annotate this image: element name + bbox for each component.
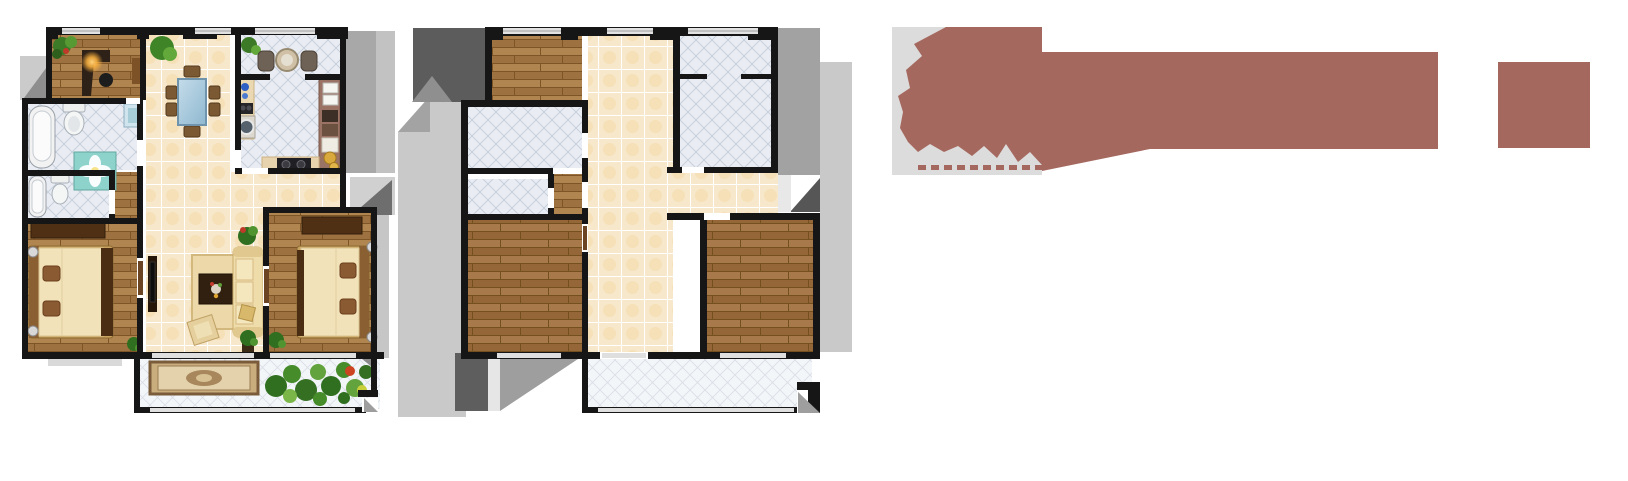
toilet-second xyxy=(51,175,69,204)
window-sill xyxy=(497,353,561,358)
nightstand-lamp xyxy=(28,326,38,336)
study-shelf xyxy=(132,58,140,84)
square-seal xyxy=(1498,62,1590,148)
window-sill xyxy=(270,353,356,358)
sofa xyxy=(233,247,263,337)
door-leaf xyxy=(138,261,143,295)
toilet-main xyxy=(63,103,85,135)
nook-chair-left xyxy=(258,51,274,71)
double-bed-right xyxy=(297,246,369,338)
floorplan-poster xyxy=(0,0,1628,481)
hall-floor-vertical xyxy=(588,34,673,352)
window-sill xyxy=(152,353,254,358)
coffee-table xyxy=(199,274,233,304)
brush-mark-icon xyxy=(898,27,1042,165)
desk-lamp-glow xyxy=(81,51,103,73)
dresser-left-bedroom xyxy=(31,222,105,238)
nightstand-lamp xyxy=(28,247,38,257)
window-sill xyxy=(720,353,786,358)
top-right-room-floor xyxy=(680,34,771,167)
mid-room-floor xyxy=(468,106,582,168)
room-floors-unfurnished xyxy=(468,34,813,407)
top-left-bedroom-floor xyxy=(492,34,582,100)
small-room-floor xyxy=(468,179,548,214)
balcony-floor-unfurnished xyxy=(588,359,812,407)
bathtub-main xyxy=(29,106,55,168)
window-sill xyxy=(150,408,355,412)
nook-table-top xyxy=(281,54,293,66)
logo-mark-group xyxy=(898,27,1590,171)
bottom-left-bedroom-floor xyxy=(468,220,582,352)
dining-table xyxy=(178,79,206,125)
entry-wood-strip xyxy=(554,174,582,214)
door-leaf xyxy=(583,226,587,250)
door-leaf xyxy=(264,269,269,303)
hall-floor xyxy=(146,172,340,210)
title-band xyxy=(1042,52,1438,149)
developer-logo xyxy=(892,27,1590,175)
kitchen-right-counter xyxy=(319,79,340,172)
nook-chair-right xyxy=(301,51,317,71)
oriental-rug xyxy=(150,362,258,394)
floorplan-furnished xyxy=(20,27,395,413)
hall-floor-horizontal xyxy=(673,173,778,213)
floorplan-unfurnished xyxy=(398,27,852,417)
tv-stand xyxy=(148,256,157,312)
wardrobe-right-bedroom xyxy=(302,217,362,234)
window-sill xyxy=(598,408,794,412)
desk-chair xyxy=(99,73,113,87)
bathtub-second xyxy=(29,176,46,217)
brush-swoosh xyxy=(1042,149,1150,171)
window-sill xyxy=(602,353,646,358)
double-bed-left xyxy=(29,246,113,338)
bottom-right-bedroom-floor xyxy=(707,220,813,352)
